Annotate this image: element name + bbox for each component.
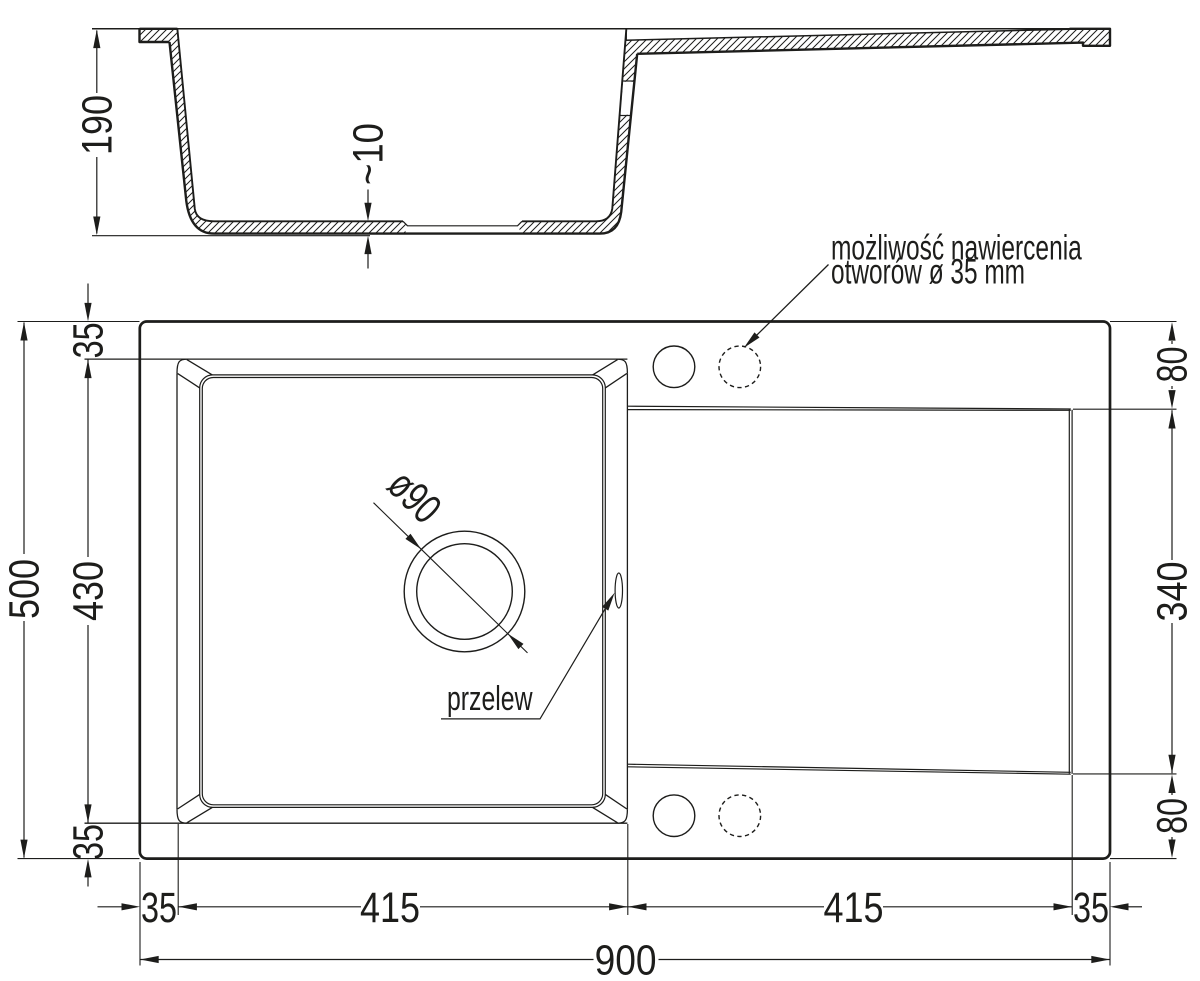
svg-text:35: 35 — [141, 885, 177, 932]
svg-text:80: 80 — [1150, 798, 1197, 834]
svg-text:otworów ø 35 mm: otworów ø 35 mm — [831, 253, 1025, 292]
svg-text:500: 500 — [2, 559, 49, 619]
svg-text:415: 415 — [824, 885, 884, 932]
svg-text:przelew: przelew — [447, 680, 533, 718]
svg-text:190: 190 — [75, 95, 122, 155]
svg-text:430: 430 — [66, 561, 113, 621]
svg-text:35: 35 — [1073, 885, 1109, 932]
svg-text:35: 35 — [66, 322, 113, 358]
svg-text:~10: ~10 — [346, 123, 393, 185]
svg-text:35: 35 — [66, 824, 113, 860]
svg-text:415: 415 — [360, 885, 420, 932]
svg-text:80: 80 — [1150, 347, 1197, 383]
svg-text:900: 900 — [595, 938, 657, 981]
svg-text:340: 340 — [1150, 562, 1197, 622]
